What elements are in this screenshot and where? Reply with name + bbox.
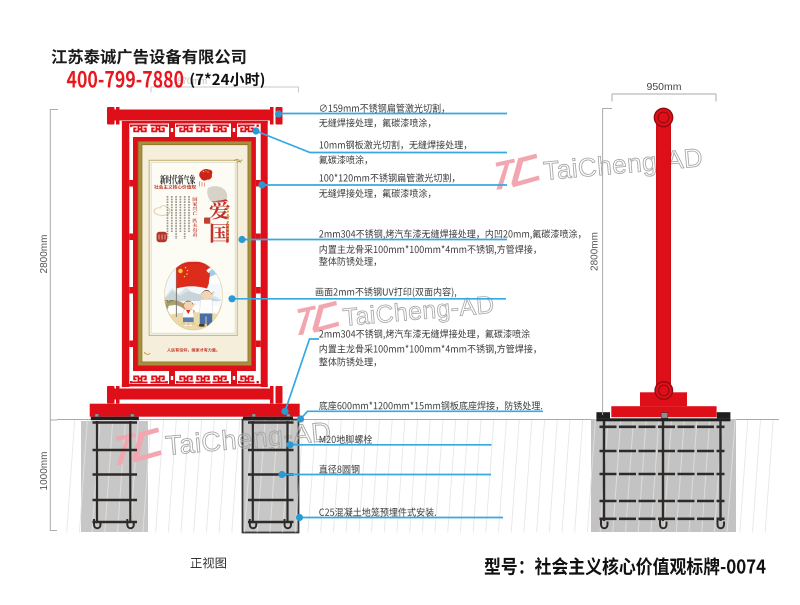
svg-text:2800mm: 2800mm xyxy=(590,232,601,271)
svg-text:2800mm: 2800mm xyxy=(39,235,50,274)
svg-text:950mm: 950mm xyxy=(646,81,681,93)
svg-text:1000mm: 1000mm xyxy=(39,452,50,491)
